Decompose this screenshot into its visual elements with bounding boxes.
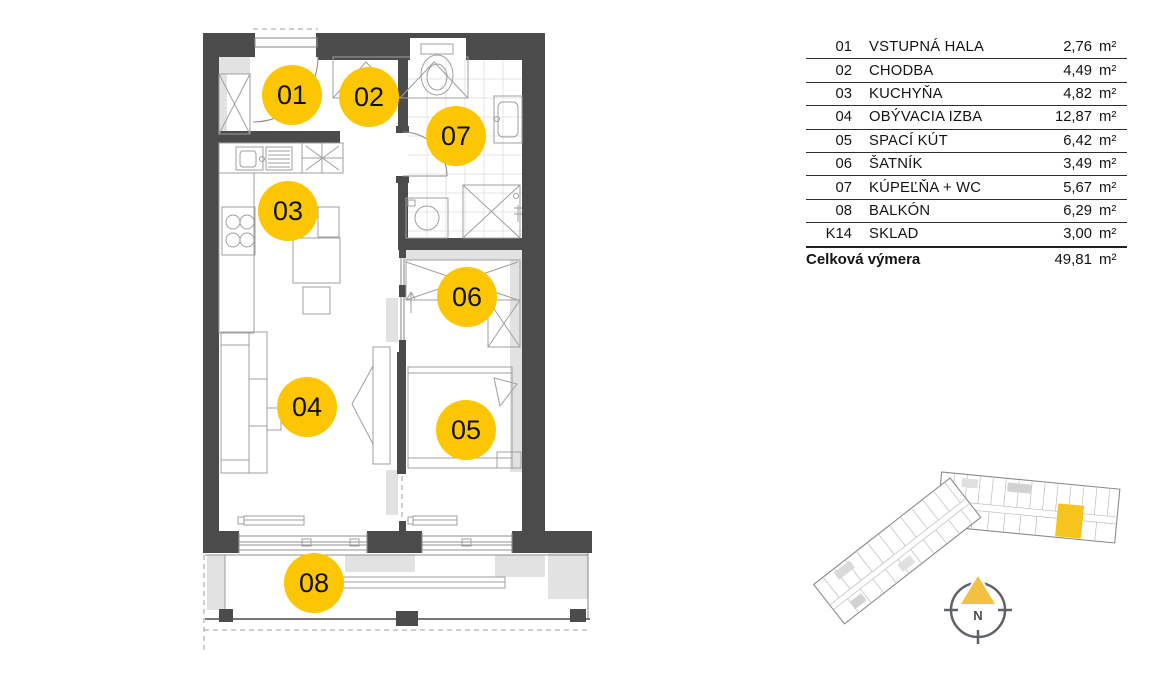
room-number: 06 <box>806 156 852 172</box>
window-right <box>422 531 512 553</box>
table-row: 07 KÚPEĽŇA + WC 5,67m² <box>806 176 1127 199</box>
room-number: 07 <box>806 180 852 196</box>
table-row: 03 KUCHYŇA 4,82m² <box>806 83 1127 106</box>
room-marker-08: 08 <box>284 553 344 613</box>
room-marker-06: 06 <box>437 267 497 327</box>
minimap-left-wing <box>814 478 981 624</box>
radiator-right <box>408 516 457 525</box>
svg-text:07: 07 <box>441 121 471 151</box>
room-name: KÚPEĽŇA + WC <box>869 180 1046 196</box>
apartment-plan: 01 02 07 03 06 <box>203 29 592 650</box>
floor-plan-page: 01 02 07 03 06 <box>0 0 1164 678</box>
total-label: Celková výmera <box>806 251 920 268</box>
room-name: BALKÓN <box>869 203 1046 219</box>
area-unit: m² <box>1099 156 1127 172</box>
table-row: 04 OBÝVACIA IZBA 12,87m² <box>806 106 1127 129</box>
room-number: 08 <box>806 203 852 219</box>
compass-north-label: N <box>973 608 982 623</box>
svg-text:05: 05 <box>451 415 481 445</box>
room-marker-02: 02 <box>339 67 399 127</box>
room-marker-04: 04 <box>277 377 337 437</box>
area-unit: m² <box>1099 251 1127 268</box>
room-area: 2,76 <box>1046 39 1092 55</box>
room-number: 01 <box>806 39 852 55</box>
room-area: 5,67 <box>1046 180 1092 196</box>
area-unit: m² <box>1099 109 1127 125</box>
area-unit: m² <box>1099 133 1127 149</box>
stove <box>222 207 255 255</box>
room-name: KUCHYŇA <box>869 86 1046 102</box>
table-row: 01 VSTUPNÁ HALA 2,76m² <box>806 36 1127 59</box>
area-unit: m² <box>1099 180 1127 196</box>
room-marker-01: 01 <box>262 65 322 125</box>
window-left <box>239 531 367 553</box>
room-number: 03 <box>806 86 852 102</box>
room-number: 05 <box>806 133 852 149</box>
svg-text:06: 06 <box>452 282 482 312</box>
room-name: OBÝVACIA IZBA <box>869 109 1046 125</box>
table-row: 06 ŠATNÍK 3,49m² <box>806 153 1127 176</box>
table-row: K14 SKLAD 3,00m² <box>806 223 1127 247</box>
area-unit: m² <box>1099 203 1127 219</box>
room-area: 3,49 <box>1046 156 1092 172</box>
area-unit: m² <box>1099 63 1127 79</box>
area-unit: m² <box>1099 86 1127 102</box>
room-area: 4,82 <box>1046 86 1092 102</box>
tv-board <box>352 347 390 464</box>
room-marker-03: 03 <box>258 181 318 241</box>
radiator-left <box>238 516 304 525</box>
room-name: CHODBA <box>869 63 1046 79</box>
room-markers: 01 02 07 03 06 <box>258 65 497 613</box>
room-number: K14 <box>806 226 852 242</box>
room-name: ŠATNÍK <box>869 156 1046 172</box>
room-area: 6,29 <box>1046 203 1092 219</box>
svg-text:04: 04 <box>292 392 322 422</box>
room-name: SPACÍ KÚT <box>869 133 1046 149</box>
room-area: 6,42 <box>1046 133 1092 149</box>
room-legend-table: 01 VSTUPNÁ HALA 2,76m² 02 CHODBA 4,49m² … <box>806 36 1127 272</box>
room-marker-07: 07 <box>426 106 486 166</box>
room-number: 02 <box>806 63 852 79</box>
svg-text:02: 02 <box>354 82 384 112</box>
room-name: SKLAD <box>869 226 1046 242</box>
table-row: 05 SPACÍ KÚT 6,42m² <box>806 130 1127 153</box>
table-row: 02 CHODBA 4,49m² <box>806 59 1127 82</box>
compass: N <box>944 576 1012 644</box>
minimap-unit-highlight <box>1055 503 1084 538</box>
room-area: 4,49 <box>1046 63 1092 79</box>
room-area: 3,00 <box>1046 226 1092 242</box>
svg-text:08: 08 <box>299 568 329 598</box>
area-unit: m² <box>1099 39 1127 55</box>
area-unit: m² <box>1099 226 1127 242</box>
compass-needle-icon <box>961 576 995 604</box>
total-area-row: Celková výmera 49,81m² <box>806 248 1127 272</box>
room-name: VSTUPNÁ HALA <box>869 39 1046 55</box>
table-row: 08 BALKÓN 6,29m² <box>806 200 1127 223</box>
sofa <box>221 332 281 473</box>
room-number: 04 <box>806 109 852 125</box>
total-area: 49,81 <box>1046 251 1092 268</box>
svg-text:03: 03 <box>273 196 303 226</box>
room-marker-05: 05 <box>436 400 496 460</box>
svg-text:01: 01 <box>277 80 307 110</box>
room-area: 12,87 <box>1046 109 1092 125</box>
